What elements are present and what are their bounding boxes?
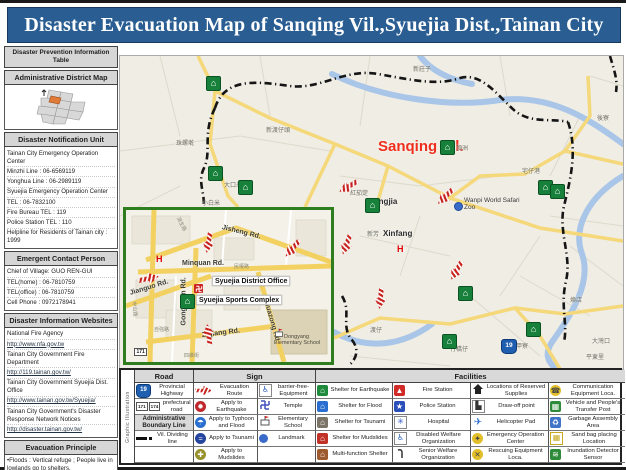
sports-complex-label: Syuejia Sports Complex [196,295,282,305]
legend-shelter-for-mudslides-label: Shelter for Mudslides [329,435,391,441]
legend-elementary-school-icon [259,415,271,431]
map-cjk-label: 小白米 [202,198,220,207]
legend-barrier-free-equipment: ♿barrier-free-Equipment [257,383,315,399]
legend-sand-bag-placing-location: ▦Sand bag placing Location [548,431,625,447]
contact-person-body: Chief of Village: GUO REN-GUITEL(home) :… [4,266,118,311]
legend-senior-welfare-organization-icon [394,447,406,463]
legend-hospital-label: Hospital [408,419,469,425]
legend-apply-to-mudslides-icon: ✚ [195,449,206,460]
legend-senior-welfare-organization-label: Senior Welfare Organization [407,448,469,460]
map-cjk-label: 平東里 [586,352,604,361]
notification-unit-header: Disaster Notification Unit [4,132,118,147]
map-cjk-label: 渡仔 [370,325,382,334]
inset-cjk-label: 中山路 [131,301,139,317]
title-bar: Disaster Evacuation Map of Sanqing Vil.,… [7,7,621,43]
legend-communication-equipment-loca-icon: ☎ [550,385,561,396]
temple-icon [194,284,203,293]
legend-apply-to-typhoon-and-flood: ☂Apply to Typhoon and Flood [193,415,257,431]
legend-locations-of-reserved-supplies: Locations of Reserved Supplies [470,383,548,399]
notification-unit-body: Tainan City Emergency Operation CenterMi… [4,147,118,249]
legend-inundation-detector-sensor-icon: ≋ [550,449,561,460]
shelter-icon: ⌂ [365,198,380,213]
inset-map: Jisheng Rd.Minquan Rd.Jianguo Rd.Ziqiang… [123,207,334,365]
website-link-5[interactable]: http://www.tainan.gov.tw/Syuejia/ [7,397,115,407]
legend-apply-to-typhoon-and-flood-label: Apply to Typhoon and Flood [207,416,256,428]
website-name-6: Tainan City Government's Disaster Respon… [7,407,115,425]
legend-barrier-free-equipment-icon: ♿ [259,384,272,397]
contact-line-3: Cell Phone : 0972178941 [7,298,115,307]
main-map[interactable]: Sanqing Vil.HongjiaXinfang新莊子後寮新渡仔頭珠螺墘大口… [119,55,624,370]
map-cjk-label: 後寮 [597,113,609,122]
legend-strip: Graphic Illustration [121,370,135,463]
evacuation-principle-header: Evacuation Principle [4,440,118,455]
top-border [0,0,626,3]
dongyang-elementary-school: Dongyang Elementary School [274,328,326,347]
legend-vehicle-and-people-s-transfer-post-label: Vehicle and People's Transfer Post [562,400,624,412]
legend-table: Graphic Illustration Road Sign Facilitie… [119,368,622,465]
shelter-icon: ⌂ [458,286,473,301]
shelter-icon: ⌂ [208,166,223,181]
map-cjk-label: 宅仔港 [522,166,540,175]
legend-apply-to-mudslides-label: Apply to Mudslides [207,448,256,460]
legend-vehicle-and-people-s-transfer-post: ▦Vehicle and People's Transfer Post [548,399,625,415]
shelter-icon: ⌂ [550,184,565,199]
admin-district-mini-map [4,85,118,130]
legend-police-station: ★Police Station [392,399,470,415]
legend-multi-function-shelter-icon: ⌂ [317,449,328,460]
map-cjk-label: 珠螺墘 [176,138,194,147]
info-websites-header: Disaster Information Websites [4,313,118,328]
legend-empty-cell [257,447,315,463]
legend-helicopter-pad: ✈Helicopter Pad [470,415,548,431]
legend-shelter-for-mudslides: ⌂Shelter for Mudslides [315,431,392,447]
legend-evacuation-route-label: Evacuation Route [213,384,256,396]
hospital-marker-icon: H [397,244,404,254]
legend-shelter-for-flood: ⌂Shelter for Flood [315,399,392,415]
legend-police-station-icon: ★ [394,401,405,412]
zoo-label: Wanpi World Safari Zoo [464,197,522,211]
legend-shelter-for-flood-icon: ⌂ [317,401,328,412]
legend-temple-label: Temple [272,403,314,409]
legend-police-station-label: Police Station [406,403,469,409]
shelter-icon: ⌂ [206,76,221,91]
notification-line-5: Fire Bureau TEL : 119 [7,208,115,218]
legend-header-sign: Sign [193,370,315,383]
prefectural-road-171-badge-icon: 171 [134,348,147,356]
legend-disabled-welfare-organization-icon: ♿ [394,432,407,445]
legend-garbage-assembly-area-icon: ♻ [550,417,561,428]
legend-apply-to-tsunami-label: Apply to Tsunami [207,435,256,441]
contact-line-0: Chief of Village: GUO REN-GUI [7,268,115,278]
legend-apply-to-earthquake-icon: ✹ [195,401,206,412]
inset-cjk-label: 四維街 [184,352,199,359]
legend-sand-bag-placing-location-label: Sand bag placing Location [564,432,624,444]
legend-prefectural-road-icon: 171174 [136,402,160,411]
legend-inundation-detector-sensor-label: Inundation Detector Sensor [562,448,624,460]
legend-multi-function-shelter: ⌂Multi-function Shelter [315,447,392,463]
legend-strip-label: Graphic Illustration [125,391,131,443]
legend-locations-of-reserved-supplies-label: Locations of Reserved Supplies [485,384,547,396]
notification-line-3: Syuejia Emergency Operation Center [7,188,115,198]
map-cjk-label: 新莊子 [413,64,431,73]
website-name-2: Tainan City Government Fire Department [7,350,115,368]
legend-fire-station-label: Fire Station [406,387,469,393]
map-cjk-label: 新渡仔頭 [266,125,290,134]
legend-multi-function-shelter-label: Multi-function Shelter [329,451,391,457]
legend-fire-station: ▲Fire Station [392,383,470,399]
legend-shelter-for-tsunami-icon: ⌂ [317,417,328,428]
landmark-dot [454,202,463,211]
district-mini-map-graphic [11,88,111,126]
contact-person-header: Emergent Contact Person [4,251,118,266]
notification-line-6: Police Station TEL : 110 [7,218,115,228]
legend-administrative-boundary-line: Administrative Boundary Line [135,415,193,431]
legend-senior-welfare-organization: Senior Welfare Organization [392,447,470,463]
legend-apply-to-tsunami-icon: ≈ [195,433,206,444]
legend-fire-station-icon: ▲ [394,385,405,396]
legend-landmark-label: Landmark [269,435,314,441]
hospital-marker-icon: H [156,254,163,264]
website-link-1[interactable]: http://www.nfa.gov.tw [7,340,115,350]
legend-provincial-highway: 19Provincial Highway [135,383,193,399]
legend-shelter-for-flood-label: Shelter for Flood [329,403,391,409]
page-title: Disaster Evacuation Map of Sanqing Vil.,… [24,14,603,37]
legend-vil-dividing-line-label: Vil. Dividing line [153,432,192,444]
legend-vehicle-and-people-s-transfer-post-icon: ▦ [550,401,561,412]
legend-shelter-for-earthquake-label: Shelter for Earthquake [329,387,391,393]
legend-communication-equipment-loca: ☎Communication Equipment Loca. [548,383,625,399]
legend-helicopter-pad-icon: ✈ [472,417,484,428]
legend-shelter-for-earthquake: ⌂Shelter for Earthquake [315,383,392,399]
district-office-label: Syuejia District Office [212,276,290,286]
website-name-4: Tainan City Government Syuejia Dist. Off… [7,379,115,397]
info-table-header: Disaster Prevention Information Table [4,46,118,68]
notification-line-1: Minzhi Line : 06-6569119 [7,167,115,177]
shelter-icon: ⌂ [442,334,457,349]
legend-draw-off-point-label: Draw-off point [486,403,547,409]
map-cjk-label: 煥店 [570,295,582,304]
shelter-icon: ⌂ [440,140,455,155]
notification-line-2: Yonghua Line : 06-2989119 [7,177,115,187]
legend-prefectural-road: 171174prefectural road [135,399,193,415]
shelter-icon: ⌂ [526,322,541,337]
legend-disabled-welfare-organization: ♿Disabled Welfare Organization [392,431,470,447]
legend-shelter-for-earthquake-icon: ⌂ [317,385,328,396]
legend-shelter-for-tsunami-label: Shelter for Tsunami [329,419,391,425]
legend-draw-off-point-icon: ▙ [472,400,485,413]
map-cjk-label: 新芳 [367,229,379,238]
shelter-icon: ⌂ [238,180,253,195]
legend-provincial-highway-icon: 19 [136,384,151,398]
legend-vil-dividing-line-icon [136,437,152,440]
legend-provincial-highway-label: Provincial Highway [152,384,192,396]
legend-header-facilities: Facilities [315,370,625,383]
legend-apply-to-mudslides: ✚Apply to Mudslides [193,447,257,463]
legend-hospital: ✳Hospital [392,415,470,431]
notification-line-0: Tainan City Emergency Operation Center [7,149,115,167]
road-label-minquan-rd: Minquan Rd. [182,260,224,267]
legend-rescuing-equipment-loca: ✕Rescuing Equipment Loca. [470,447,548,463]
place-label-xinfang: Xinfang [383,229,412,238]
map-cjk-label: 大灣口 [592,336,610,345]
legend-evacuation-route: Evacuation Route [193,383,257,399]
legend-disabled-welfare-organization-label: Disabled Welfare Organization [408,432,469,444]
contact-line-2: TEL(office) : 06-7810759 [7,288,115,298]
legend-draw-off-point: ▙Draw-off point [470,399,548,415]
inset-cjk-label: 自強路 [154,326,169,333]
legend-emergency-operation-center-icon: ✦ [472,433,483,444]
legend-temple-icon [259,399,271,415]
legend-empty-cell [135,447,193,463]
legend-apply-to-tsunami: ≈Apply to Tsunami [193,431,257,447]
legend-vil-dividing-line: Vil. Dividing line [135,431,193,447]
legend-apply-to-earthquake-label: Apply to Earthquake [207,400,256,412]
website-link-7[interactable]: http://disaster.tainan.gov.tw/ [7,425,115,434]
legend-header-road: Road [135,370,193,383]
evacuation-map-poster: Disaster Evacuation Map of Sanqing Vil.,… [0,0,626,470]
legend-shelter-for-mudslides-icon: ⌂ [317,433,328,444]
legend-elementary-school-label: Elementary School [272,416,314,428]
legend-evacuation-route-icon [195,386,212,396]
inset-cjk-label: 民權路 [234,263,249,270]
sidebar: Disaster Prevention Information Table Ad… [4,46,118,470]
legend-rescuing-equipment-loca-label: Rescuing Equipment Loca. [484,448,547,460]
legend-inundation-detector-sensor: ≋Inundation Detector Sensor [548,447,625,463]
contact-line-1: TEL(home) : 06-7810759 [7,278,115,288]
legend-garbage-assembly-area-label: Garbage Assembly Area [562,416,624,428]
legend-rescuing-equipment-loca-icon: ✕ [472,449,483,460]
notification-line-7: Helpline for Residents of Tainan city : … [7,229,115,246]
legend-shelter-for-tsunami: ⌂Shelter for Tsunami [315,415,392,431]
map-cjk-label: 紅茄萣 [350,188,368,197]
website-link-3[interactable]: http://119.tainan.gov.tw/ [7,368,115,378]
legend-temple: Temple [257,399,315,415]
admin-district-map-header: Administrative District Map [4,70,118,85]
info-websites-body: National Fire Agencyhttp://www.nfa.gov.t… [4,328,118,438]
shelter-icon: ⌂ [180,294,195,309]
elementary-school-icon [274,334,284,340]
evacuation-principle-body: •Floods : Vertical refuge ; People live … [4,455,118,470]
legend-prefectural-road-label: prefectural road [161,400,192,412]
legend-landmark: Landmark [257,431,315,447]
provincial-highway-19-shield-icon: 19 [501,339,517,354]
legend-helicopter-pad-label: Helicopter Pad [485,419,547,425]
website-name-0: National Fire Agency [7,330,115,340]
legend-elementary-school: Elementary School [257,415,315,431]
legend-communication-equipment-loca-label: Communication Equipment Loca. [562,384,624,396]
legend-locations-of-reserved-supplies-icon [472,383,484,399]
legend-apply-to-earthquake: ✹Apply to Earthquake [193,399,257,415]
legend-barrier-free-equipment-label: barrier-free-Equipment [273,384,314,396]
legend-apply-to-typhoon-and-flood-icon: ☂ [195,417,206,428]
legend-emergency-operation-center-label: Emergency Operation Center [484,432,547,444]
evacuation-line-0: •Floods : Vertical refuge ; People live … [7,457,115,470]
map-cjk-label: 頂洲 [456,143,468,152]
notification-line-4: TEL : 06-7832100 [7,198,115,208]
legend-hospital-icon: ✳ [394,416,407,429]
legend-sand-bag-placing-location-icon: ▦ [550,432,563,445]
legend-landmark-icon [259,434,268,443]
legend-garbage-assembly-area: ♻Garbage Assembly Area [548,415,625,431]
legend-emergency-operation-center: ✦Emergency Operation Center [470,431,548,447]
legend-grid: Road Sign Facilities 19Provincial Highwa… [135,370,625,463]
